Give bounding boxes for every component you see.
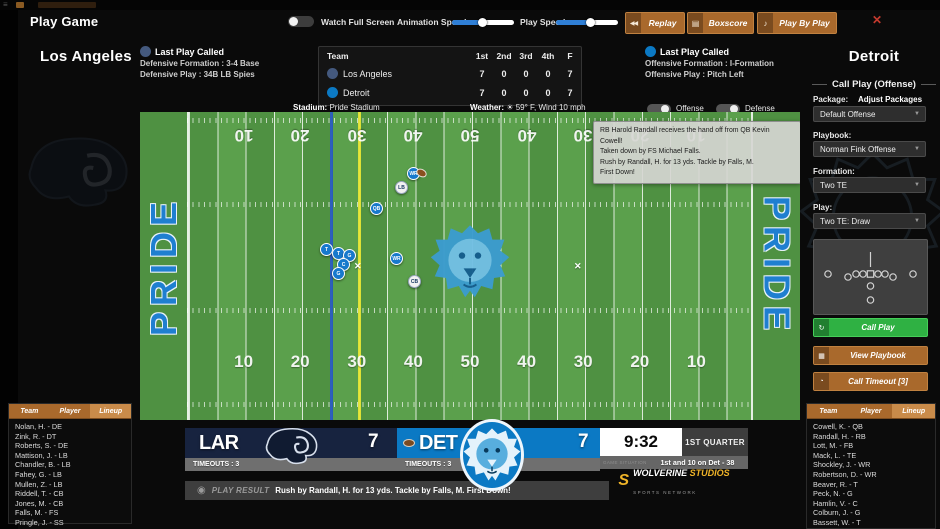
play-select[interactable]: Two TE: Draw▼ [813, 213, 926, 229]
score-cell: 0 [493, 88, 515, 98]
microphone-icon: ♪ [758, 13, 773, 33]
package-select[interactable]: Default Offense▼ [813, 106, 926, 122]
score-col-header: 3rd [515, 51, 537, 61]
watch-full-screen-label: Watch Full Screen [321, 17, 394, 27]
roster-player-row[interactable]: Chandler, B. - LB [9, 460, 131, 470]
roster-player-row[interactable]: Mattison, J. - LB [9, 451, 131, 461]
watch-full-screen-toggle[interactable] [288, 16, 314, 27]
roster-tab-player[interactable]: Player [50, 404, 91, 418]
home-team-name: Detroit [812, 48, 936, 65]
home-abbr: DET [419, 432, 458, 455]
rams-mini-logo [140, 46, 151, 57]
quarter-indicator: 1ST QUARTER [682, 428, 748, 456]
score-col-header: 1st [471, 51, 493, 61]
roster-player-row[interactable]: Riddell, T. - CB [9, 489, 131, 499]
score-col-header: Team [319, 51, 471, 61]
score-col-header: 2nd [493, 51, 515, 61]
roster-tabs: TeamPlayerLineup [807, 404, 935, 419]
play-label: Play: [813, 203, 832, 212]
call-play-button[interactable]: ↻ Call Play [813, 318, 928, 337]
field-player-cb: CB [408, 275, 421, 288]
away-roster-list: Nolan, H. - DEZink, R. - DTRoberts, S. -… [9, 419, 131, 528]
window-titlebar: ≡ [0, 0, 940, 10]
app-logo [38, 2, 96, 8]
rewind-icon: ◀◀ [626, 13, 641, 33]
menu-icon[interactable]: ≡ [3, 0, 8, 10]
roster-player-row[interactable]: Cowell, K. - QB [807, 422, 935, 432]
field-x-mark: ✕ [574, 261, 582, 272]
score-table-body: Los Angeles70007Detroit70007 [319, 64, 581, 102]
offensive-play: Offensive Play : Pitch Left [645, 70, 820, 79]
defensive-play: Defensive Play : 34B LB Spies [140, 70, 315, 79]
wolverine-s-icon: S [618, 472, 629, 490]
field-player-wr: WR [390, 252, 403, 265]
chevron-down-icon: ▼ [914, 111, 920, 117]
roster-tab-player[interactable]: Player [850, 404, 893, 418]
boxscore-button[interactable]: ▤ Boxscore [687, 12, 754, 34]
roster-player-row[interactable]: Colburn, J. - G [807, 508, 935, 518]
home-score: 7 [578, 431, 589, 453]
view-playbook-button[interactable]: ▦ View Playbook [813, 346, 928, 365]
chevron-down-icon: ▼ [914, 146, 920, 152]
replay-button[interactable]: ◀◀ Replay [625, 12, 685, 34]
chevron-down-icon: ▼ [914, 218, 920, 224]
whistle-icon: ◉ [197, 485, 206, 496]
roster-player-row[interactable]: Randall, H. - RB [807, 432, 935, 442]
yard-number: 50 [456, 125, 484, 145]
possession-football-icon [403, 439, 415, 447]
score-table-header: Team1st2nd3rd4thF [319, 47, 581, 64]
page-title: Play Game [30, 14, 98, 29]
roster-player-row[interactable]: Fahey, G. - LB [9, 470, 131, 480]
away-abbr: LAR [199, 432, 239, 455]
defensive-formation: Defensive Formation : 3-4 Base [140, 59, 315, 68]
playbook-label: Playbook: [813, 131, 851, 140]
last-play-title: Last Play Called [660, 47, 729, 57]
play-by-play-button[interactable]: ♪ Play By Play [757, 12, 837, 34]
roster-player-row[interactable]: Hamlin, V. - C [807, 499, 935, 509]
sun-icon: ☀ [506, 103, 513, 112]
book-icon: ▦ [814, 347, 829, 364]
call-play-title: Call Play (Offense) [812, 79, 936, 90]
score-col-header: F [559, 51, 581, 61]
yard-number: 10 [230, 125, 258, 145]
field-player-lb: LB [395, 181, 408, 194]
play-commentary-tooltip: RB Harold Randall receives the hand off … [593, 121, 800, 184]
roster-player-row[interactable]: Roberts, S. - DE [9, 441, 131, 451]
last-play-title: Last Play Called [155, 47, 224, 57]
score-cell: 0 [515, 69, 537, 79]
offensive-formation: Offensive Formation : I-Formation [645, 59, 820, 68]
score-cell: 0 [537, 88, 559, 98]
close-icon[interactable]: ✕ [872, 13, 882, 27]
roster-player-row[interactable]: Shockley, J. - WR [807, 460, 935, 470]
roster-tab-lineup[interactable]: Lineup [90, 404, 131, 418]
roster-tab-lineup[interactable]: Lineup [892, 404, 935, 418]
home-roster-list: Cowell, K. - QBRandall, H. - RBLott, M. … [807, 419, 935, 528]
roster-player-row[interactable]: Peck, N. - G [807, 489, 935, 499]
field-x-mark: ✕ [354, 261, 362, 272]
score-cell: 0 [493, 69, 515, 79]
document-icon: ▤ [688, 13, 703, 33]
yard-number: 20 [626, 352, 654, 372]
score-cell: 7 [559, 69, 581, 79]
play-result-text: Rush by Randall, H. for 13 yds. Tackle b… [275, 486, 510, 495]
hash-marks [187, 308, 753, 313]
away-score: 7 [368, 431, 379, 453]
lions-logo [460, 419, 524, 491]
football-field: PRIDE PRIDE 102030405040302010 102030405… [140, 112, 800, 420]
roster-player-row[interactable]: Falls, M. - FS [9, 508, 131, 518]
stadium-text: Stadium: Pride Stadium [293, 103, 380, 112]
away-team-name: Los Angeles [40, 48, 132, 65]
play-diagram [813, 239, 928, 315]
roster-player-row[interactable]: Jones, M. - CB [9, 499, 131, 509]
home-roster-panel: TeamPlayerLineup Cowell, K. - QBRandall,… [806, 403, 936, 529]
roster-player-row[interactable]: Zink, R. - DT [9, 432, 131, 442]
slider-thumb[interactable] [478, 18, 487, 27]
yard-number: 10 [230, 352, 258, 372]
clock-icon: ◔ [814, 373, 829, 390]
weather-text: Weather: ☀ 59° F, Wind 10 mph [470, 103, 586, 112]
yardnums-bottom: 102030405040302010 [187, 352, 753, 376]
ram-mini-logo [327, 68, 338, 79]
hash-marks [187, 402, 753, 407]
score-cell: 7 [559, 88, 581, 98]
yard-number: 40 [399, 352, 427, 372]
game-clock: 9:32 [600, 428, 682, 456]
score-cell: 7 [471, 88, 493, 98]
yard-number: 30 [569, 352, 597, 372]
roster-player-row[interactable]: Robertson, D. - WR [807, 470, 935, 480]
playbook-select[interactable]: Norman Fink Offense▼ [813, 141, 926, 157]
tooltip-line: Taken down by FS Michael Falls. [600, 147, 794, 158]
roster-tab-team[interactable]: Team [807, 404, 850, 418]
slider-fill [556, 20, 590, 25]
roster-player-row[interactable]: Pringle, J. - SS [9, 518, 131, 528]
score-table: Team1st2nd3rd4thF Los Angeles70007Detroi… [318, 46, 582, 106]
score-cell: 7 [471, 69, 493, 79]
formation-label: Formation: [813, 167, 855, 176]
chevron-down-icon: ▼ [914, 182, 920, 188]
roster-player-row[interactable]: Lott, M. - FB [807, 441, 935, 451]
midfield-lion-logo [430, 222, 510, 302]
package-label: Package: [813, 95, 848, 104]
network-logo: S WOLVERINE STUDIOS SPORTS NETWORK [600, 469, 748, 493]
score-table-row: Detroit70007 [319, 83, 581, 102]
roster-player-row[interactable]: Nolan, H. - DE [9, 422, 131, 432]
score-col-header: 4th [537, 51, 559, 61]
yard-number: 10 [682, 352, 710, 372]
yard-number: 40 [513, 352, 541, 372]
hash-marks [187, 202, 753, 207]
tooltip-line: First Down! [600, 168, 794, 179]
yard-number: 20 [286, 125, 314, 145]
yard-number: 50 [456, 352, 484, 372]
tooltip-line: RB Harold Randall receives the hand off … [600, 126, 794, 147]
roster-player-row[interactable]: Bassett, W. - T [807, 518, 935, 528]
away-last-play-panel: Last Play Called Defensive Formation : 3… [140, 46, 315, 79]
score-table-row: Los Angeles70007 [319, 64, 581, 83]
field-player-qb: QB [370, 202, 383, 215]
roster-player-row[interactable]: Mack, L. - TE [807, 451, 935, 461]
score-cell: 0 [537, 69, 559, 79]
yard-number: 20 [286, 352, 314, 372]
lion-mini-logo [327, 87, 338, 98]
roster-player-row[interactable]: Beaver, R. - T [807, 480, 935, 490]
lions-mini-logo [645, 46, 656, 57]
yard-number: 40 [513, 125, 541, 145]
play-speed-slider[interactable] [556, 20, 618, 25]
adjust-packages-link[interactable]: Adjust Packages [858, 95, 922, 104]
app-icon [16, 2, 24, 8]
animation-speed-slider[interactable] [452, 20, 514, 25]
left-endzone: PRIDE [140, 112, 187, 420]
yard-number: 40 [399, 125, 427, 145]
roster-tabs: TeamPlayerLineup [9, 404, 131, 419]
call-timeout-button[interactable]: ◔ Call Timeout [3] [813, 372, 928, 391]
tooltip-line: Rush by Randall, H. for 13 yds. Tackle b… [600, 158, 794, 169]
roster-player-row[interactable]: Mullen, Z. - LB [9, 480, 131, 490]
score-cell: 0 [515, 88, 537, 98]
formation-select[interactable]: Two TE▼ [813, 177, 926, 193]
away-roster-panel: TeamPlayerLineup Nolan, H. - DEZink, R. … [8, 403, 132, 524]
home-last-play-panel: Last Play Called Offensive Formation : I… [645, 46, 820, 79]
play-game-screen: ≡ Play Game Watch Full Screen Animation … [0, 0, 940, 529]
play-result-bar: ◉ PLAY RESULT Rush by Randall, H. for 13… [185, 481, 609, 500]
field-player-g: G [332, 267, 345, 280]
toggle-knob [289, 17, 298, 26]
roster-tab-team[interactable]: Team [9, 404, 50, 418]
yard-number: 30 [343, 125, 371, 145]
refresh-icon: ↻ [814, 319, 829, 336]
rams-logo [243, 424, 339, 466]
yard-number: 30 [343, 352, 371, 372]
